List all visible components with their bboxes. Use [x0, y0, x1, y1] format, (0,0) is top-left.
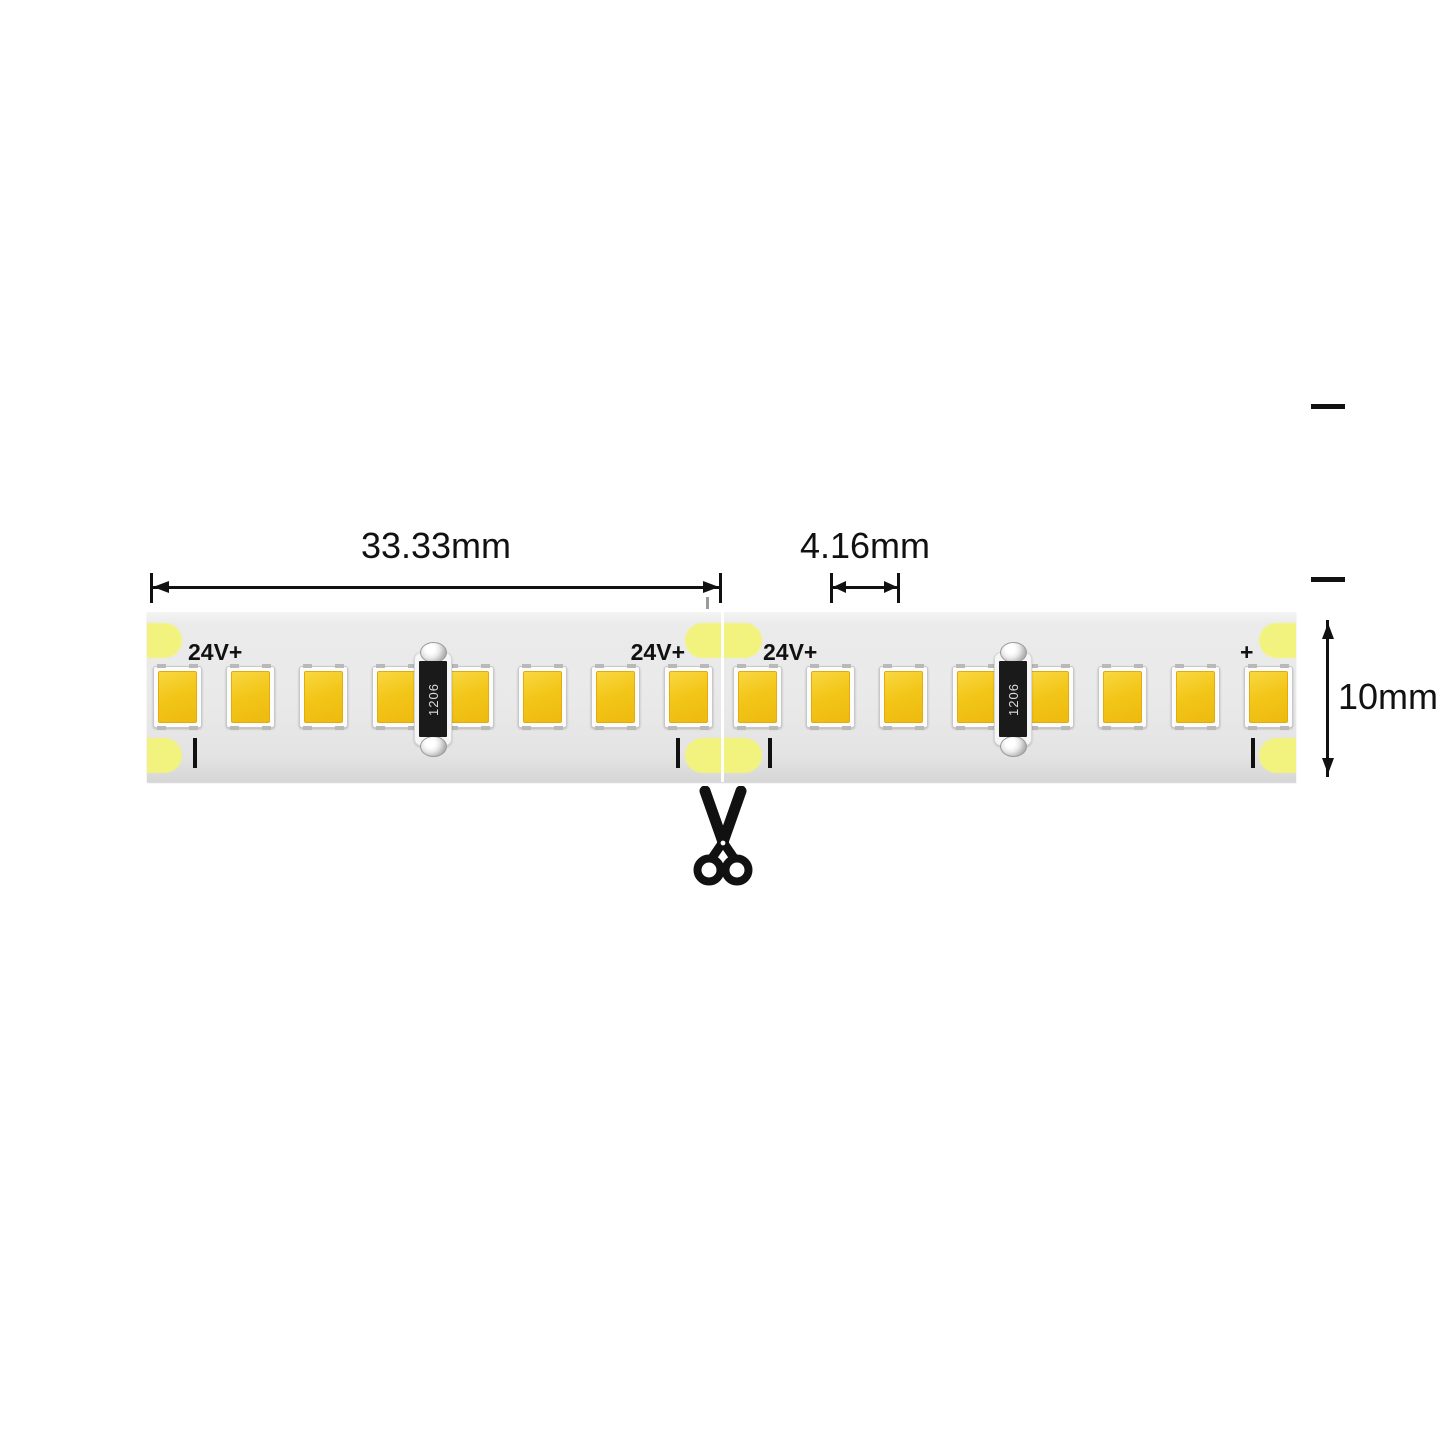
cut-line	[721, 612, 724, 782]
minus-polarity-mark	[676, 738, 680, 768]
led-chip	[806, 666, 855, 728]
led-emitter	[377, 671, 416, 723]
led-emitter	[1176, 671, 1215, 723]
resistor-code-label: 1206	[426, 683, 441, 716]
led-chip	[664, 666, 713, 728]
resistor-body: 1206	[419, 661, 447, 737]
solder-pad	[147, 623, 182, 658]
led-chip	[1244, 666, 1293, 728]
led-chip	[445, 666, 494, 728]
led-emitter	[957, 671, 996, 723]
arrowhead-left-icon	[833, 581, 846, 593]
dimension-led-pitch: 4.16mm	[830, 573, 900, 603]
solder-pad	[1259, 738, 1296, 773]
reference-dash	[1311, 404, 1345, 409]
polarity-label-before-cut: 24V+	[585, 639, 685, 666]
led-emitter	[231, 671, 270, 723]
solder-pad	[147, 738, 182, 773]
led-emitter	[1030, 671, 1069, 723]
polarity-label-after-cut: 24V+	[763, 639, 817, 666]
solder-via	[420, 736, 447, 757]
led-chip	[226, 666, 275, 728]
led-emitter	[523, 671, 562, 723]
led-emitter	[304, 671, 343, 723]
led-chip	[1171, 666, 1220, 728]
strip-width-label: 10mm	[1338, 676, 1438, 718]
minus-polarity-mark	[193, 738, 197, 768]
led-chip	[879, 666, 928, 728]
led-strip-pcb: 1206120624V+24V+24V++	[147, 612, 1296, 782]
led-emitter	[596, 671, 635, 723]
resistor-body: 1206	[999, 661, 1027, 737]
led-chip	[299, 666, 348, 728]
cut-mark-tick	[706, 597, 709, 609]
led-chip	[153, 666, 202, 728]
led-chip	[1098, 666, 1147, 728]
led-emitter	[1249, 671, 1288, 723]
led-emitter	[884, 671, 923, 723]
dimension-line	[1326, 620, 1329, 777]
polarity-label-right-end: +	[1240, 639, 1253, 666]
solder-pad	[1259, 623, 1296, 658]
dimension-tick	[719, 573, 722, 603]
dimension-tick	[897, 573, 900, 603]
led-chip	[733, 666, 782, 728]
minus-polarity-mark	[1251, 738, 1255, 768]
resistor-code-label: 1206	[1006, 683, 1021, 716]
dimension-line	[153, 586, 719, 589]
led-chip	[1025, 666, 1074, 728]
solder-via	[420, 642, 447, 663]
led-chip	[518, 666, 567, 728]
arrowhead-left-icon	[153, 581, 169, 593]
led-emitter	[669, 671, 708, 723]
polarity-label-left-end: 24V+	[188, 639, 242, 666]
diagram-canvas: 33.33mm 4.16mm 10mm 1206120624V+24V+24V+…	[0, 0, 1445, 1445]
solder-via	[1000, 736, 1027, 757]
led-emitter	[811, 671, 850, 723]
arrowhead-right-icon	[703, 581, 719, 593]
led-chip	[591, 666, 640, 728]
arrowhead-down-icon	[1322, 758, 1334, 780]
led-pitch-label: 4.16mm	[710, 525, 1020, 567]
dimension-strip-width	[1326, 617, 1330, 780]
solder-via	[1000, 642, 1027, 663]
arrowhead-right-icon	[884, 581, 897, 593]
led-emitter	[450, 671, 489, 723]
led-emitter	[1103, 671, 1142, 723]
led-emitter	[738, 671, 777, 723]
minus-polarity-mark	[768, 738, 772, 768]
led-emitter	[158, 671, 197, 723]
reference-dash	[1311, 577, 1345, 582]
dimension-segment-length: 33.33mm	[150, 573, 722, 603]
arrowhead-up-icon	[1322, 617, 1334, 639]
scissors-icon	[690, 786, 756, 888]
